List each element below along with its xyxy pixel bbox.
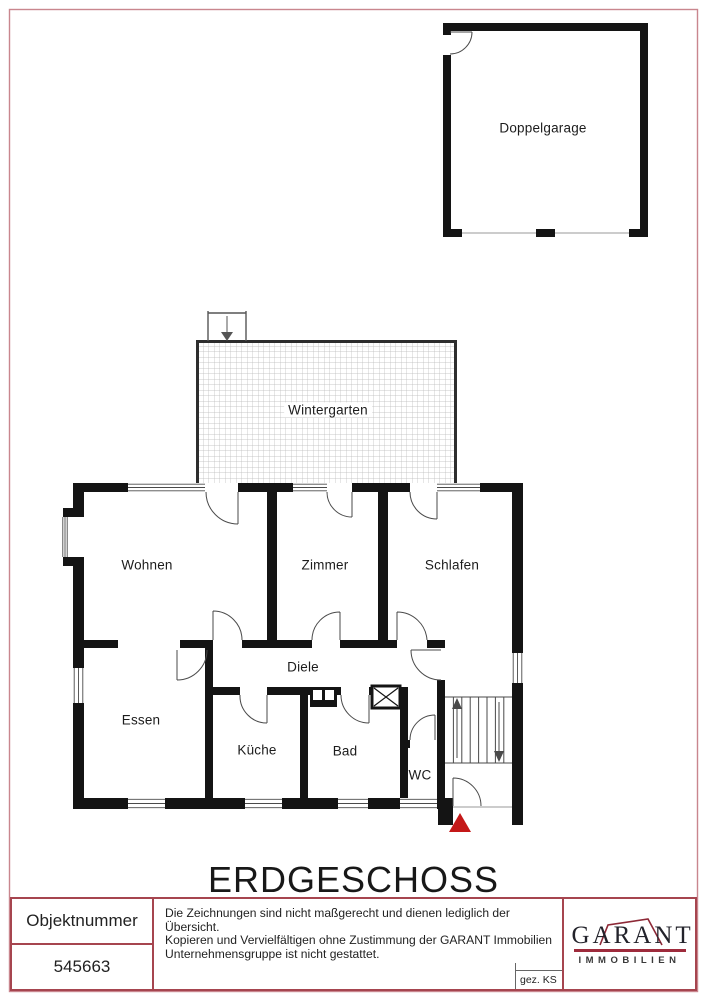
room-label-wc: WC: [409, 768, 432, 783]
room-label-diele: Diele: [287, 660, 319, 675]
house-outer-walls: [63, 483, 523, 825]
page-border: [10, 10, 698, 992]
room-label-zimmer: Zimmer: [302, 558, 349, 573]
room-label-doppelgarage: Doppelgarage: [499, 121, 586, 136]
disclaimer-line-3: Unternehmensgruppe ist nicht gestattet.: [165, 948, 554, 962]
object-number-label: Objektnummer: [12, 899, 152, 945]
disclaimer-line-2: Kopieren und Vervielfältigen ohne Zustim…: [165, 934, 554, 948]
logo-wordmark: GARANT: [572, 923, 688, 949]
logo-rule: [574, 949, 686, 952]
room-label-kueche: Küche: [237, 743, 276, 758]
drawn-by-box: gez. KS: [515, 970, 562, 989]
title-block: Objektnummer 545663 Die Zeichnungen sind…: [10, 897, 697, 991]
floor-title: ERDGESCHOSS: [10, 859, 697, 901]
object-number-column: Objektnummer 545663: [12, 899, 154, 989]
room-label-schlafen: Schlafen: [425, 558, 479, 573]
room-label-wintergarten: Wintergarten: [284, 403, 372, 418]
wintergarten-entry-steps: [208, 311, 246, 341]
object-number-value: 545663: [12, 945, 152, 989]
shaft-symbol: [372, 686, 400, 708]
disclaimer-column: Die Zeichnungen sind nicht maßgerecht un…: [154, 899, 562, 989]
logo-column: GARANT IMMOBILIEN: [562, 899, 695, 989]
staircase: [445, 697, 512, 763]
room-label-wohnen: Wohnen: [121, 558, 172, 573]
logo-subtitle: IMMOBILIEN: [572, 955, 688, 966]
door-swings: [177, 492, 481, 806]
entry-arrow-icon: [221, 332, 233, 341]
chimney-symbol: [310, 687, 337, 707]
floor-plan-drawing: [0, 0, 707, 1000]
disclaimer-line-1: Die Zeichnungen sind nicht maßgerecht un…: [165, 907, 554, 934]
garant-logo: GARANT IMMOBILIEN: [572, 923, 688, 966]
floorplan-page: Doppelgarage Wintergarten Wohnen Zimmer …: [0, 0, 707, 1000]
room-label-bad: Bad: [333, 744, 358, 759]
room-label-essen: Essen: [122, 713, 161, 728]
garage-side-door-swing: [450, 32, 472, 54]
